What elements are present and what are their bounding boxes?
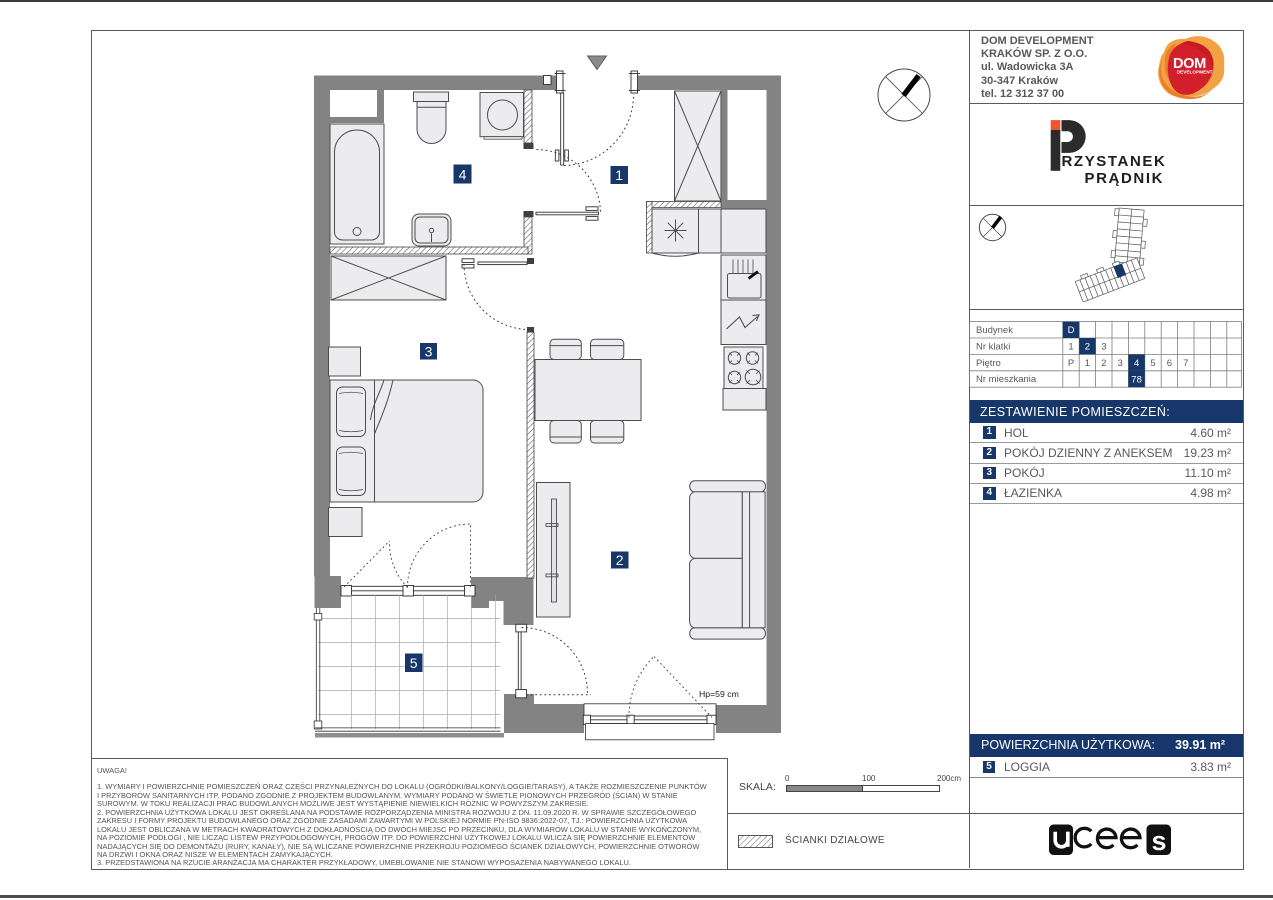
svg-text:3: 3 bbox=[425, 343, 433, 359]
svg-text:2: 2 bbox=[616, 552, 624, 568]
svg-text:1: 1 bbox=[615, 167, 623, 183]
svg-text:Hp=59 cm: Hp=59 cm bbox=[699, 689, 739, 699]
svg-text:5: 5 bbox=[410, 655, 418, 671]
svg-text:4: 4 bbox=[459, 167, 467, 183]
